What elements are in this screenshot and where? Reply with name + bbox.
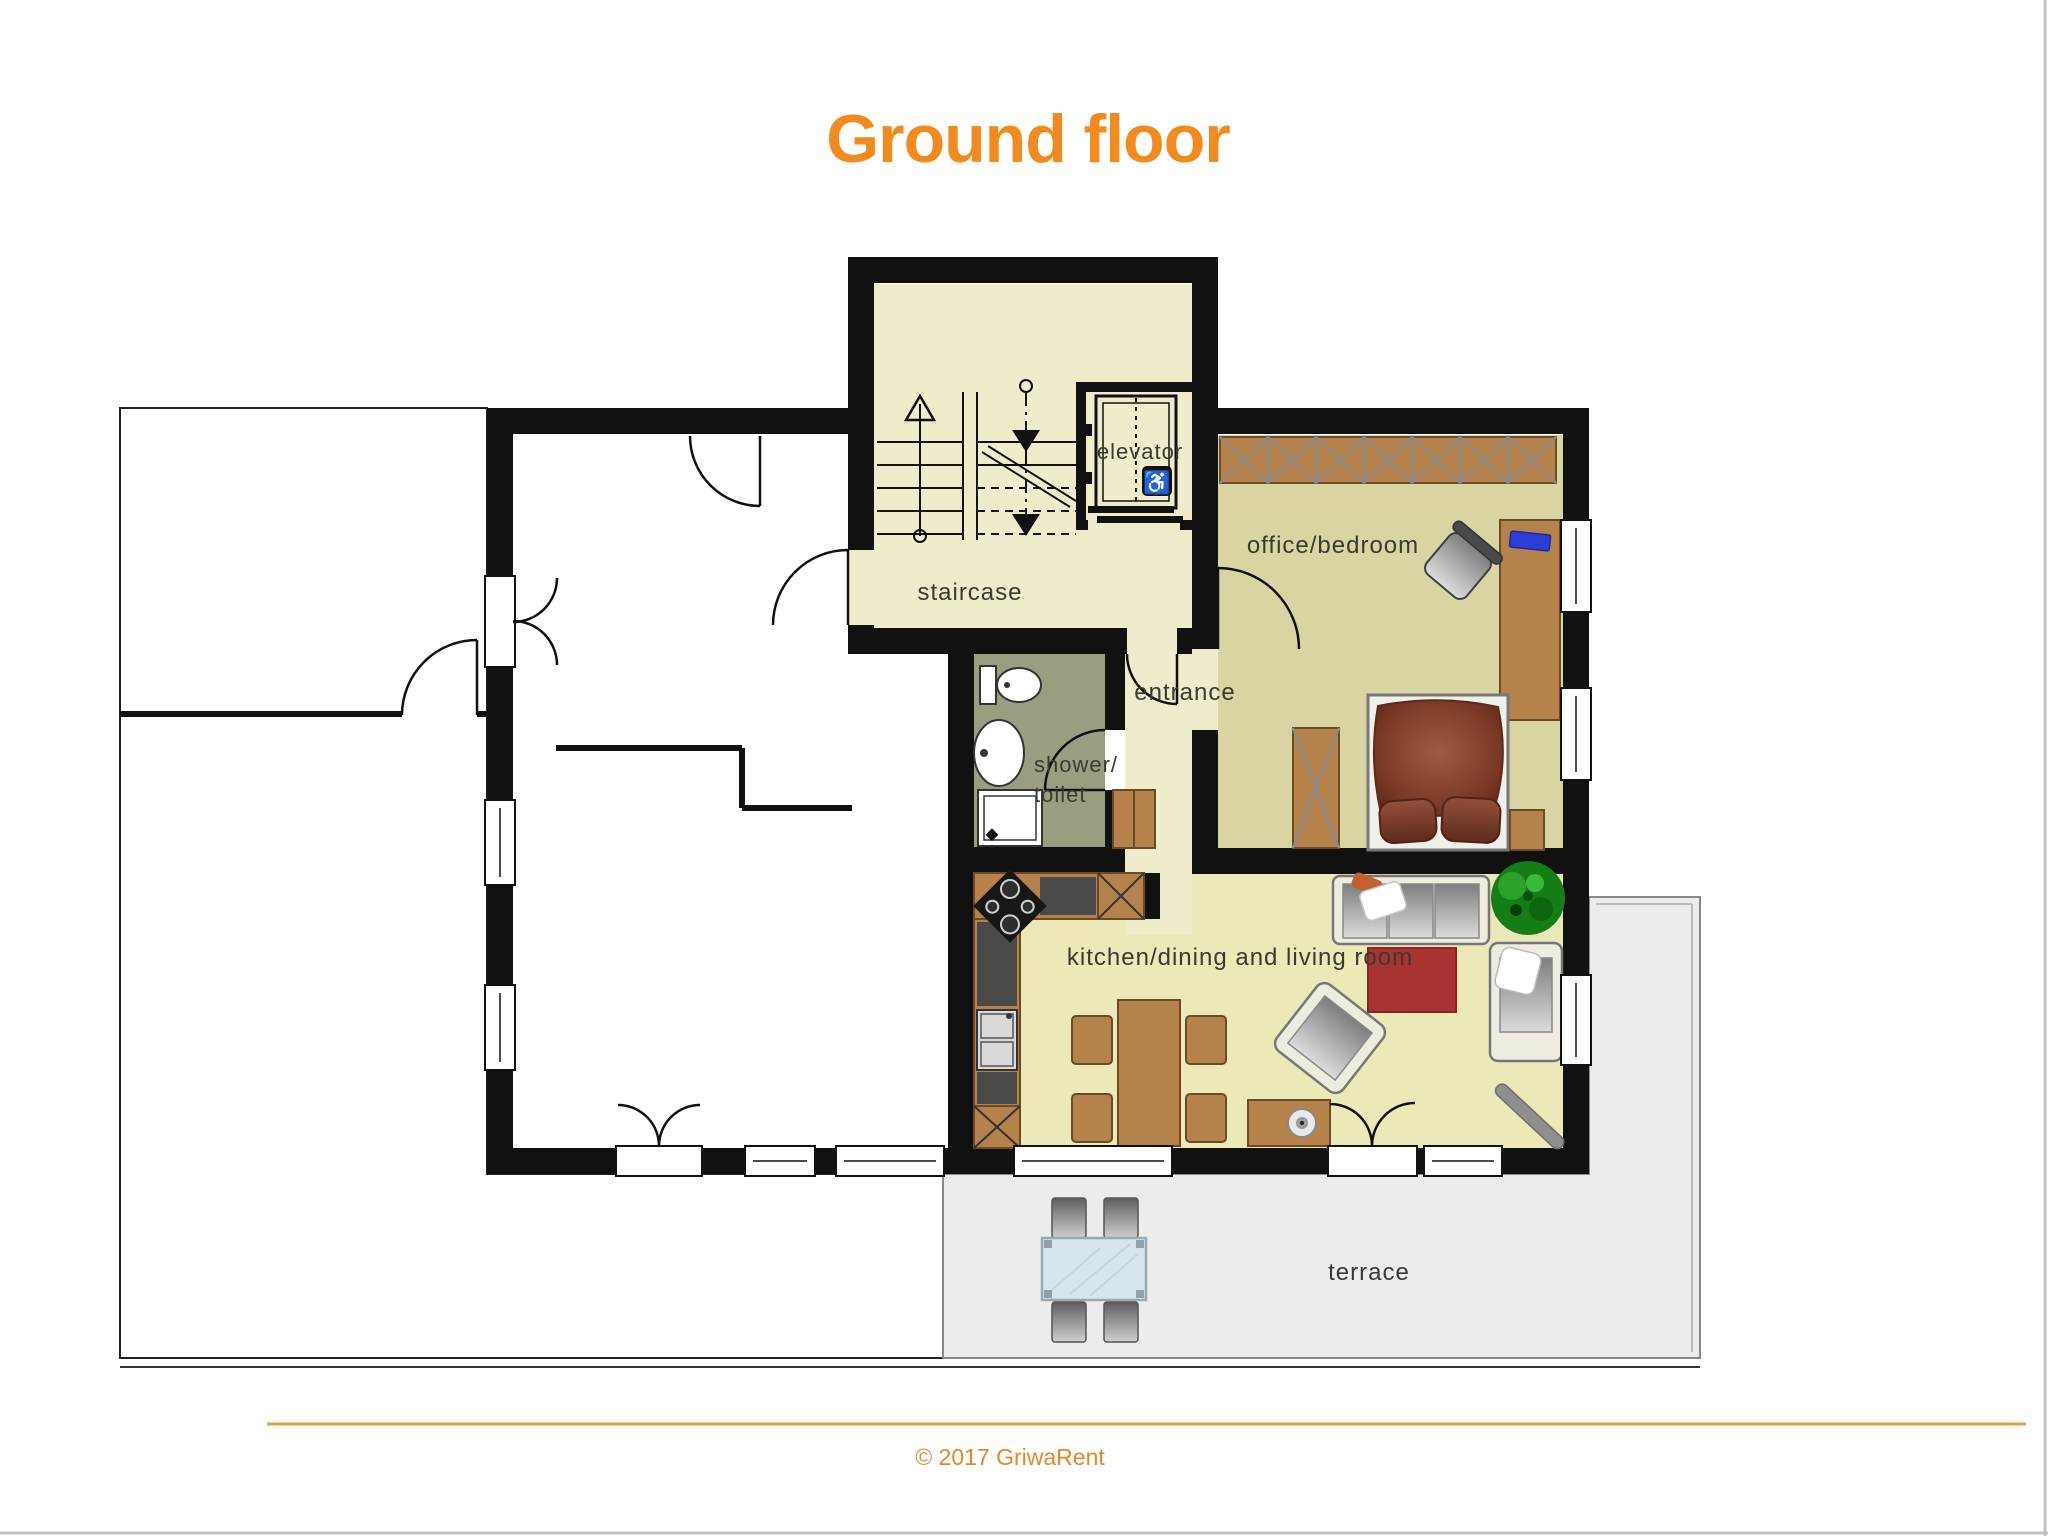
floorplan-drawing: Ground floor [0, 0, 2048, 1536]
french-door-arc [513, 578, 557, 665]
window [1561, 975, 1591, 1065]
shower [978, 790, 1042, 846]
label-kitchen-living: kitchen/dining and living room [1067, 944, 1413, 971]
doorway [1127, 628, 1177, 654]
sofa [1333, 871, 1489, 944]
wardrobe-left [1293, 728, 1339, 848]
double-bed [1368, 695, 1508, 850]
label-shower-toilet-2: toilet [1034, 782, 1086, 807]
label-terrace: terrace [1328, 1259, 1410, 1286]
wardrobe-top [1220, 437, 1556, 483]
door-arc [773, 550, 848, 625]
footer-copyright: © 2017 GriwaRent [915, 1444, 1105, 1470]
label-entrance: entrance [1134, 679, 1235, 706]
window [1561, 520, 1591, 612]
label-shower-toilet-1: shower/ [1034, 752, 1118, 777]
window [485, 800, 515, 885]
wheelchair-icon-glyph: ♿ [1143, 470, 1170, 495]
plant [1491, 861, 1565, 935]
nightstand [1510, 810, 1544, 850]
page-title: Ground floor [826, 101, 1230, 177]
door-opening [485, 576, 515, 667]
armchair-right [1490, 943, 1562, 1061]
label-staircase: staircase [917, 579, 1022, 606]
french-door-arc [618, 1105, 700, 1146]
tv-sideboard [1248, 1100, 1330, 1146]
floorplan-page: Ground floor [0, 0, 2048, 1536]
label-office-bedroom: office/bedroom [1247, 532, 1419, 559]
desk [1500, 520, 1560, 720]
window [1014, 1146, 1172, 1176]
window [1424, 1146, 1502, 1176]
doorway [848, 550, 874, 625]
bathroom-sink [974, 720, 1024, 786]
elevator-label: elevator [1097, 439, 1183, 464]
door-arc [690, 436, 760, 506]
door-opening [616, 1146, 702, 1176]
door-opening [1328, 1146, 1417, 1176]
window [836, 1146, 944, 1176]
window [485, 985, 515, 1070]
toilet [980, 666, 1041, 704]
window [1561, 688, 1591, 780]
kitchen-sink [977, 1010, 1017, 1070]
window [745, 1146, 815, 1176]
